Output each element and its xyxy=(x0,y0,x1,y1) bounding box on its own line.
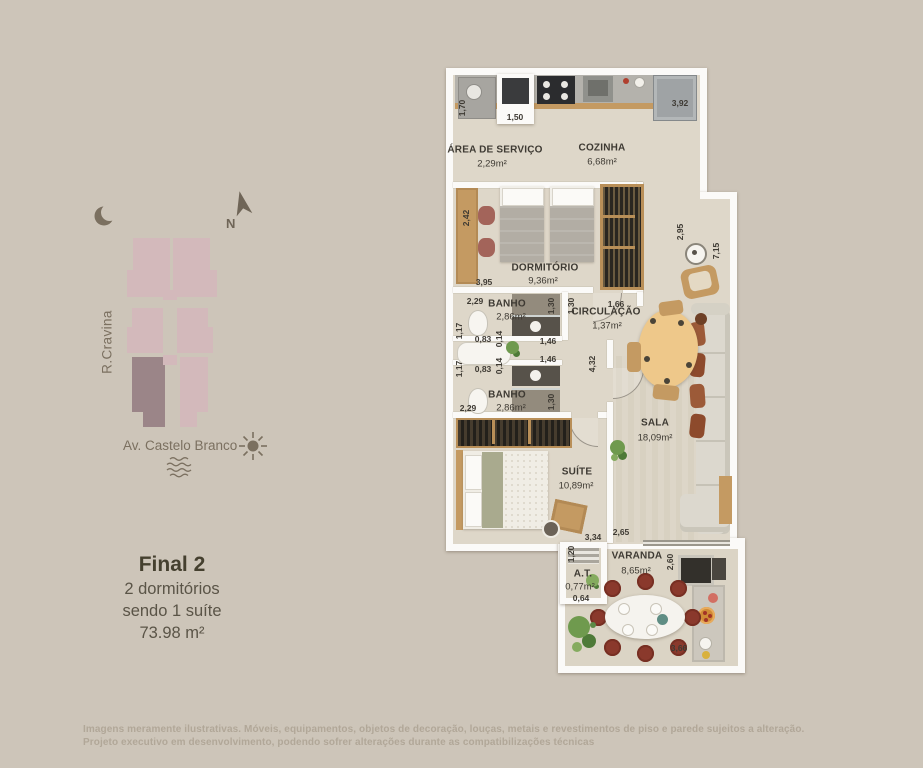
building-unit xyxy=(173,270,217,297)
sofa-pillow xyxy=(689,384,706,409)
banho2-sink xyxy=(530,370,541,381)
banho1-toilet xyxy=(468,310,488,336)
counter-drink xyxy=(702,651,710,659)
room-area-circulacao: 1,37m² xyxy=(592,321,622,332)
dim-circ-door: 1,30 xyxy=(566,298,576,315)
dim-at-height: 1,20 xyxy=(566,546,576,563)
room-label-cozinha: COZINHA xyxy=(579,143,626,154)
disclaimer: Imagens meramente ilustrativas. Móveis, … xyxy=(83,724,863,749)
suite-duvet xyxy=(503,452,548,528)
dim-sala-right: 7,15 xyxy=(711,243,721,260)
room-label-sala: SALA xyxy=(641,418,669,429)
dining-chair xyxy=(652,384,679,402)
room-area-banho1: 2,86m² xyxy=(496,312,526,323)
suite-side-table xyxy=(542,520,560,538)
room-label-dormitorio: DORMITÓRIO xyxy=(512,263,579,274)
sofa-side-table xyxy=(719,476,732,524)
grill-side xyxy=(712,558,726,580)
room-area-at: 0,77m² xyxy=(565,582,595,593)
varanda-table xyxy=(605,595,685,639)
dim-circ-width: 1,66 xyxy=(608,299,625,309)
street-label-bottom: Av. Castelo Branco xyxy=(123,438,237,453)
room-label-banho2: BANHO xyxy=(488,390,526,401)
dim-banho1-gap: 0,14 xyxy=(494,331,504,348)
table-plate xyxy=(618,603,630,615)
building-core xyxy=(163,290,177,300)
table-plate xyxy=(646,624,658,636)
wall-hall-sala-top xyxy=(607,340,613,368)
table-plate xyxy=(622,624,634,636)
unit-suite: sendo 1 suíte xyxy=(66,600,278,622)
street-label-left: R.Cravina xyxy=(100,310,115,374)
dorm-bookshelf xyxy=(600,184,644,290)
stove xyxy=(537,76,575,104)
suite-bed-headboard xyxy=(456,450,463,530)
dim-varanda-width: 3,66 xyxy=(671,643,688,653)
dorm-chair xyxy=(478,206,495,225)
wall-dorm-bottom xyxy=(453,287,593,293)
dorm-bed-blanket xyxy=(500,206,544,262)
dorm-bed-pillow xyxy=(502,188,544,206)
varanda-plant xyxy=(568,616,590,638)
wall-circ-right-stub xyxy=(637,292,643,306)
room-area-banho2: 2,86m² xyxy=(496,403,526,414)
dorm-bed-pillow xyxy=(552,188,594,206)
dim-banho1-w2: 0,83 xyxy=(475,334,492,344)
room-area-varanda: 8,65m² xyxy=(621,566,651,577)
suite-pillow xyxy=(465,492,482,527)
building-unit-highlighted xyxy=(132,357,165,412)
wall-suite-top-stub xyxy=(598,412,607,418)
dim-banho1-width: 2,29 xyxy=(467,296,484,306)
dim-dorm-width: 3,95 xyxy=(476,277,493,287)
dim-banho2-niche: 1,46 xyxy=(540,354,557,364)
room-area-servico: 2,29m² xyxy=(477,159,507,170)
dim-banho2-h2: 1,17 xyxy=(454,361,464,378)
wall-hall-sala-bottom xyxy=(607,402,613,543)
room-label-suite: SUÍTE xyxy=(562,467,592,478)
building-unit xyxy=(127,327,163,353)
disclaimer-line2: Projeto executivo em desenvolvimento, po… xyxy=(83,737,863,750)
building-unit-highlighted xyxy=(143,412,165,427)
counter-flowers xyxy=(708,593,718,603)
north-label: N xyxy=(226,216,235,231)
building-unit xyxy=(173,238,210,270)
marketing-floorplan-page: N R.Cravina Av. Castelo Branco xyxy=(0,0,923,768)
building-unit xyxy=(177,327,213,353)
room-label-varanda: VARANDA xyxy=(612,551,663,562)
dim-sala-wall: 4,32 xyxy=(587,356,597,373)
room-area-cozinha: 6,68m² xyxy=(587,157,617,168)
varanda-chair xyxy=(670,580,687,597)
dim-banho1-h2: 1,17 xyxy=(454,323,464,340)
sofa-pillow xyxy=(689,413,706,438)
dim-servico-cabinet: 1,50 xyxy=(507,112,524,122)
stove-burners xyxy=(543,81,550,88)
dim-sala-width: 2,65 xyxy=(613,527,630,537)
varanda-chair xyxy=(637,645,654,662)
dim-banho2-gap: 0,14 xyxy=(494,358,504,375)
counter-decor-red xyxy=(623,78,629,84)
sala-plant xyxy=(610,440,625,455)
unit-bedrooms: 2 dormitórios xyxy=(66,578,278,600)
decor-bowl xyxy=(695,313,707,325)
waves-icon xyxy=(166,456,196,480)
ceiling-fan-center xyxy=(692,250,697,255)
kitchen-sink-basin xyxy=(588,80,608,96)
dim-at-width: 0,64 xyxy=(573,593,590,603)
counter-decor-kettle xyxy=(634,77,645,88)
counter-plate xyxy=(699,637,712,650)
counter-pizza-toppings xyxy=(703,611,707,615)
varanda-chair xyxy=(604,639,621,656)
dim-banho2-door: 1,30 xyxy=(546,394,556,411)
building-unit xyxy=(180,357,208,412)
varanda-chair xyxy=(684,609,701,626)
dorm-bed-blanket xyxy=(550,206,594,262)
floor-plan: ÁREA DE SERVIÇO 2,29m² COZINHA 6,68m² DO… xyxy=(440,60,752,680)
sliding-door xyxy=(643,540,730,546)
dining-chair xyxy=(627,342,641,372)
dim-servico-height: 1,70 xyxy=(457,100,467,117)
site-plan: N R.Cravina Av. Castelo Branco xyxy=(80,190,300,490)
suite-pillow xyxy=(465,455,482,490)
dim-banho2-w2: 0,83 xyxy=(475,364,492,374)
dim-banho2-width: 2,29 xyxy=(460,403,477,413)
suite-blanket xyxy=(482,452,503,528)
disclaimer-line1: Imagens meramente ilustrativas. Móveis, … xyxy=(83,724,863,737)
dim-varanda-height: 2,60 xyxy=(665,554,675,571)
building-unit xyxy=(133,238,170,270)
dining-table-seats xyxy=(650,318,656,324)
sun-icon xyxy=(237,430,269,462)
varanda-chair xyxy=(604,580,621,597)
table-bowl xyxy=(657,614,668,625)
dorm-chair xyxy=(478,238,495,257)
suite-wardrobe-dividers xyxy=(492,418,495,444)
dorm-bookshelf-shelves xyxy=(603,215,635,218)
dim-cozinha-width: 3,92 xyxy=(672,98,689,108)
suite-wardrobe xyxy=(456,418,572,448)
dim-suite-width: 3,34 xyxy=(585,532,602,542)
room-area-dormitorio: 9,36m² xyxy=(528,276,558,287)
dim-banho1-door: 1,30 xyxy=(546,298,556,315)
banho1-sink xyxy=(530,321,541,332)
room-area-suite: 10,89m² xyxy=(559,481,594,492)
unit-title: Final 2 xyxy=(66,551,278,578)
dorm-desk xyxy=(456,188,478,284)
dim-banho1-niche: 1,46 xyxy=(540,336,557,346)
unit-area: 73.98 m² xyxy=(66,622,278,644)
sink-basin xyxy=(466,84,482,100)
room-label-circulacao: CIRCULAÇÃO xyxy=(571,307,640,318)
room-area-sala: 18,09m² xyxy=(638,433,673,444)
dim-sala-step: 2,95 xyxy=(675,224,685,241)
bath-plant xyxy=(506,341,519,354)
unit-info: Final 2 2 dormitórios sendo 1 suíte 73.9… xyxy=(66,551,278,644)
room-label-at: A.T. xyxy=(574,569,593,580)
building-unit xyxy=(180,412,197,427)
dim-dorm-height: 2,42 xyxy=(461,210,471,227)
room-label-banho1: BANHO xyxy=(488,299,526,310)
room-label-servico: ÁREA DE SERVIÇO xyxy=(447,145,542,156)
building-core xyxy=(163,355,177,365)
service-cabinet-inner xyxy=(502,78,529,104)
moon-icon xyxy=(92,202,118,228)
